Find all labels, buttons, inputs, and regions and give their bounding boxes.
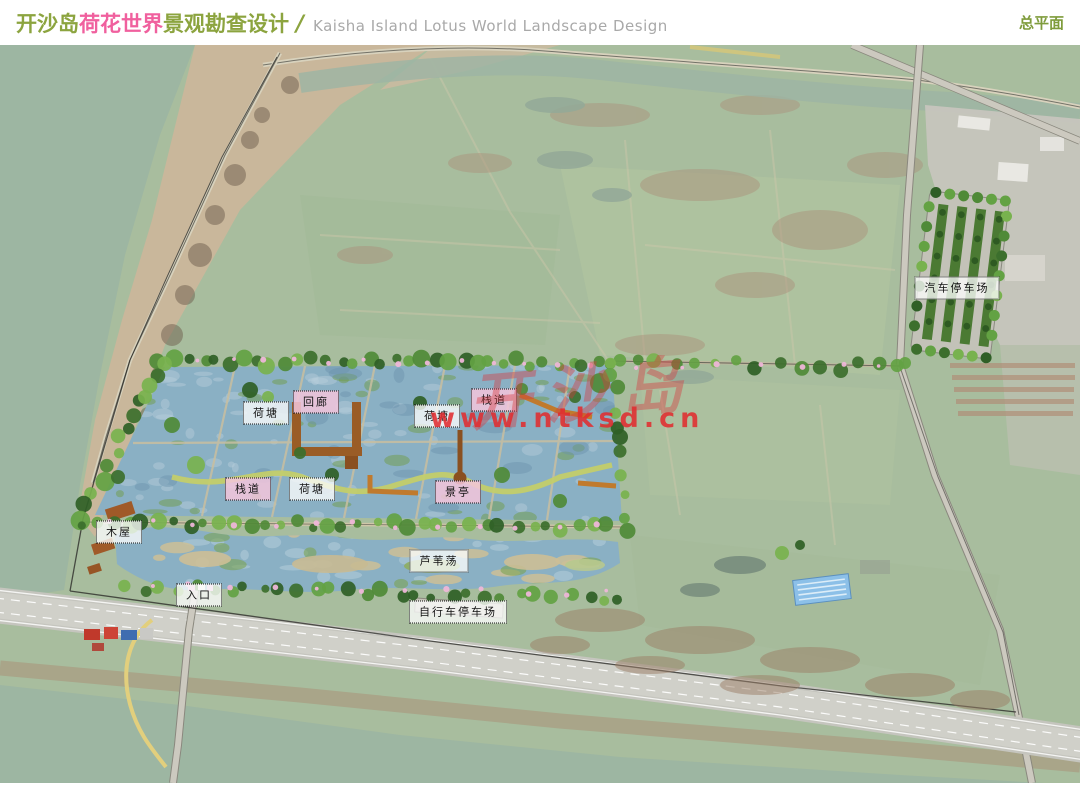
map-label-boardwalk-2: 栈道 [225,478,271,501]
aerial-plan-drawing [0,45,1080,783]
title-separator: / [296,12,304,37]
lotus-pond-area [95,361,625,525]
map-label-lotus-pond-3: 荷塘 [289,478,335,501]
map-label-pavilion: 景亭 [435,481,481,504]
plan-type-label: 总平面 [1019,12,1064,33]
map-label-lotus-pond-2: 荷塘 [414,405,460,428]
title-en: Kaisha Island Lotus World Landscape Desi… [313,17,668,35]
map-label-reed-marsh: 芦苇荡 [410,550,469,573]
site-plan-map: 荷塘回廊荷塘栈道栈道荷塘景亭木屋入口芦苇荡自行车停车场汽车停车场 开沙岛 www… [0,45,1080,783]
map-label-bicycle-parking: 自行车停车场 [409,601,507,624]
title-cn-site: 开沙岛 [16,8,79,38]
page: 开沙岛 荷花世界 景观勘查设计 / Kaisha Island Lotus Wo… [0,0,1080,810]
title-cn-design: 景观勘查设计 [163,8,289,38]
map-label-entrance: 入口 [176,584,222,607]
title-cn-lotus-world: 荷花世界 [79,8,163,38]
map-label-wood-cabin: 木屋 [96,521,142,544]
map-label-corridor: 回廊 [293,391,339,414]
header: 开沙岛 荷花世界 景观勘查设计 / Kaisha Island Lotus Wo… [0,0,1080,45]
page-title: 开沙岛 荷花世界 景观勘查设计 / Kaisha Island Lotus Wo… [16,8,668,38]
map-label-car-parking: 汽车停车场 [915,277,1000,300]
footer-margin [0,783,1080,810]
map-label-lotus-pond-1: 荷塘 [243,402,289,425]
map-label-boardwalk-1: 栈道 [471,389,517,412]
